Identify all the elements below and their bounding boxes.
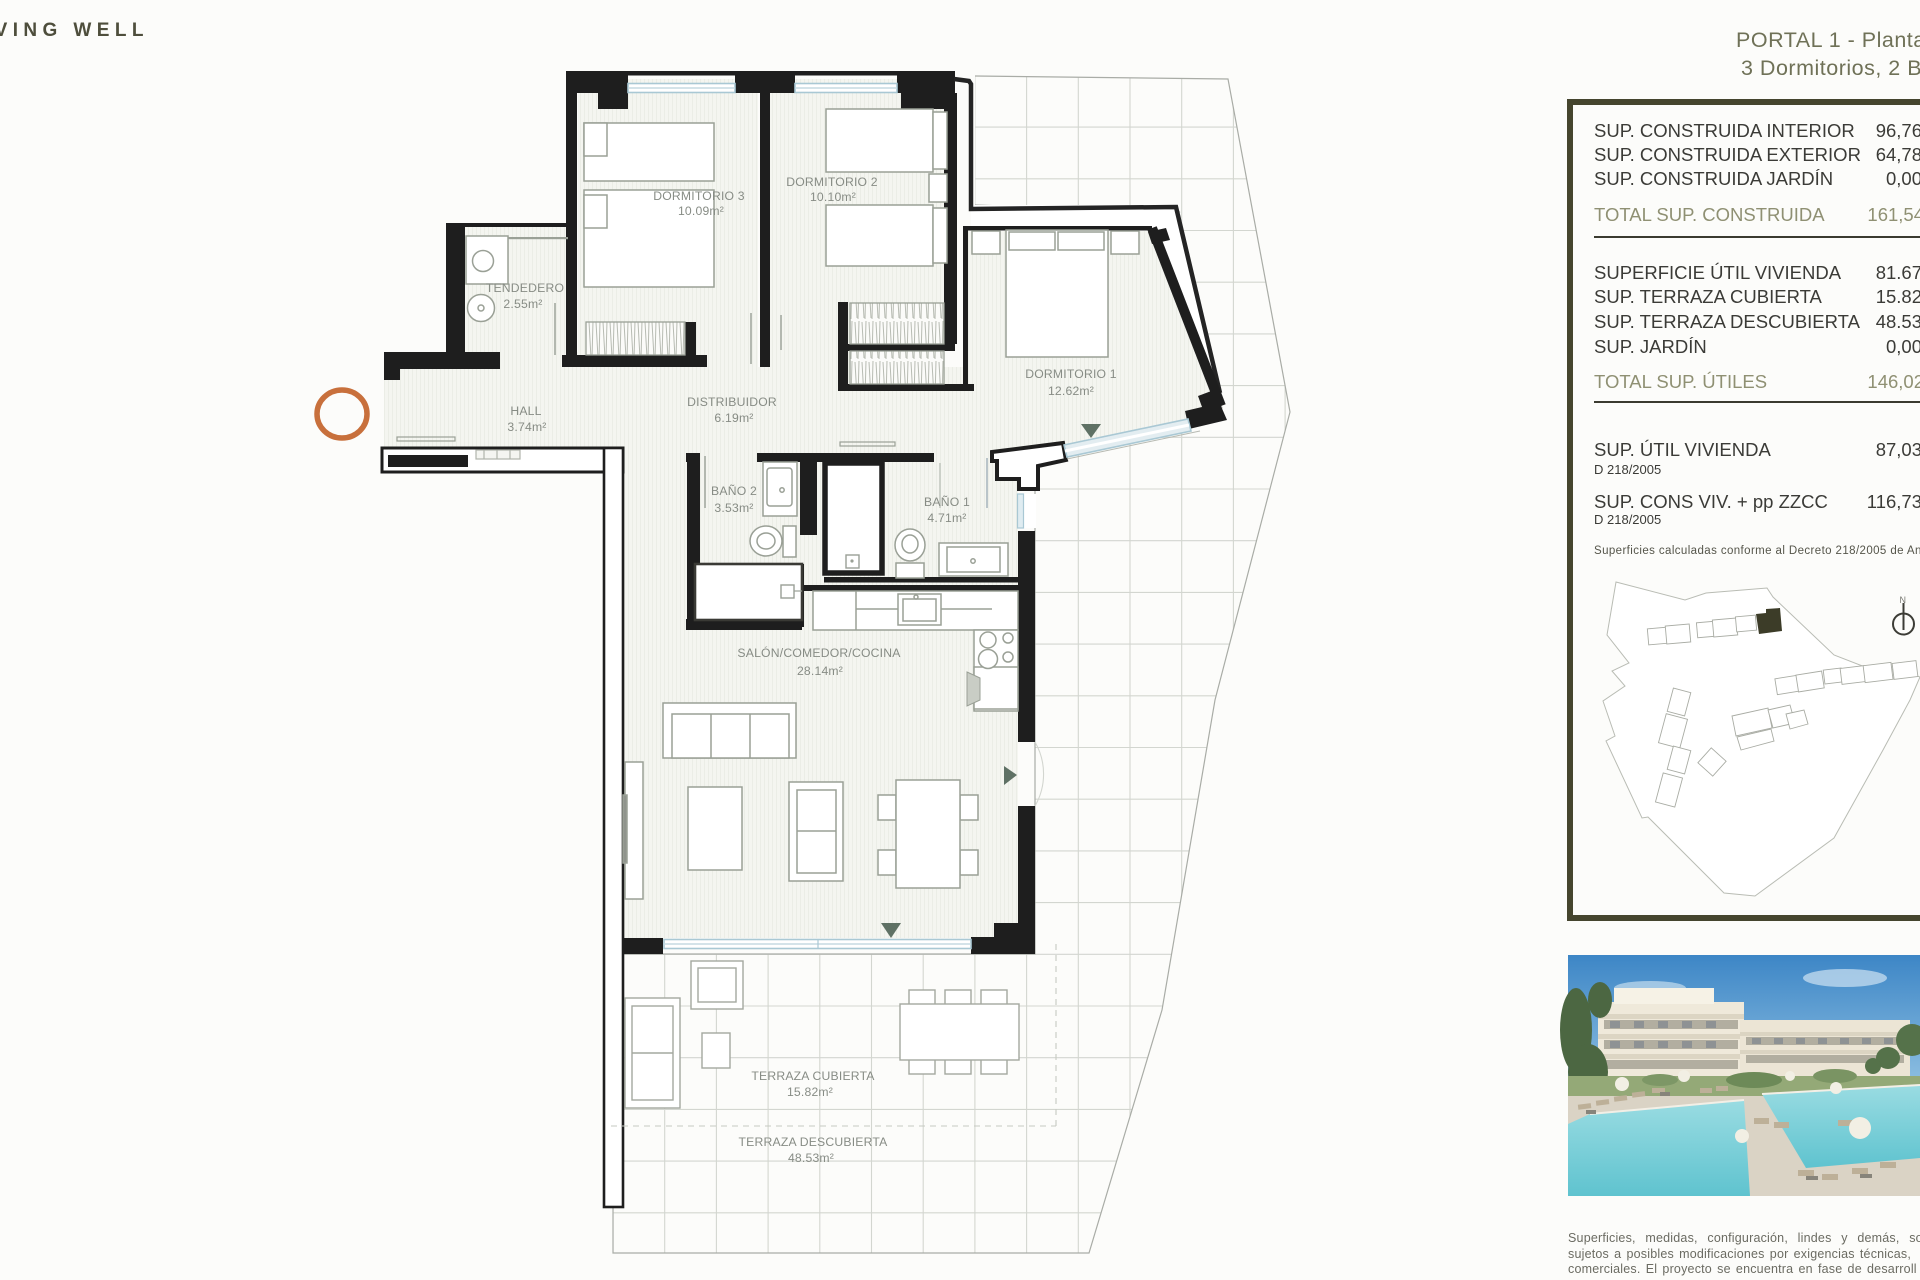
svg-text:TERRAZA DESCUBIERTA: TERRAZA DESCUBIERTA bbox=[739, 1135, 889, 1149]
svg-text:4.71m²: 4.71m² bbox=[927, 511, 966, 525]
svg-text:HALL: HALL bbox=[510, 404, 541, 418]
svg-text:DISTRIBUIDOR: DISTRIBUIDOR bbox=[687, 395, 777, 409]
svg-text:116,73: 116,73 bbox=[1867, 491, 1920, 512]
svg-text:PORTAL 1 - Planta B: PORTAL 1 - Planta B bbox=[1736, 28, 1920, 52]
svg-text:64,78: 64,78 bbox=[1876, 144, 1920, 165]
svg-text:SUP. CONSTRUIDA INTERIOR: SUP. CONSTRUIDA INTERIOR bbox=[1594, 120, 1855, 141]
svg-text:SUP. CONS VIV. + pp ZZCC: SUP. CONS VIV. + pp ZZCC bbox=[1594, 491, 1828, 512]
svg-text:15.82: 15.82 bbox=[1876, 286, 1920, 307]
svg-text:161,54: 161,54 bbox=[1867, 204, 1920, 225]
svg-text:28.14m²: 28.14m² bbox=[797, 664, 843, 678]
svg-text:TENDEDERO: TENDEDERO bbox=[486, 281, 564, 295]
svg-text:146,02: 146,02 bbox=[1867, 371, 1920, 392]
svg-text:Superficies, medidas, configur: Superficies, medidas, configuración, lin… bbox=[1568, 1231, 1920, 1245]
svg-text:0,00: 0,00 bbox=[1886, 168, 1920, 189]
svg-text:LIVING WELL: LIVING WELL bbox=[0, 20, 149, 41]
svg-text:48.53: 48.53 bbox=[1876, 311, 1920, 332]
svg-text:0,00: 0,00 bbox=[1886, 336, 1920, 357]
svg-text:sujetos a posibles modificacio: sujetos a posibles modificaciones por ex… bbox=[1568, 1247, 1911, 1261]
svg-text:SUP. TERRAZA CUBIERTA: SUP. TERRAZA CUBIERTA bbox=[1594, 286, 1823, 307]
svg-text:TOTAL SUP. ÚTILES: TOTAL SUP. ÚTILES bbox=[1594, 371, 1767, 392]
svg-text:SUP. CONSTRUIDA EXTERIOR: SUP. CONSTRUIDA EXTERIOR bbox=[1594, 144, 1861, 165]
svg-text:DORMITORIO 1: DORMITORIO 1 bbox=[1025, 367, 1117, 381]
svg-text:D 218/2005: D 218/2005 bbox=[1594, 462, 1661, 477]
svg-text:SUP. JARDÍN: SUP. JARDÍN bbox=[1594, 336, 1707, 357]
svg-text:10.10m²: 10.10m² bbox=[810, 190, 856, 204]
svg-text:D 218/2005: D 218/2005 bbox=[1594, 512, 1661, 527]
svg-text:TOTAL SUP. CONSTRUIDA: TOTAL SUP. CONSTRUIDA bbox=[1594, 204, 1825, 225]
svg-text:96,76: 96,76 bbox=[1876, 120, 1920, 141]
svg-text:SUP. CONSTRUIDA JARDÍN: SUP. CONSTRUIDA JARDÍN bbox=[1594, 168, 1833, 189]
svg-text:SUPERFICIE ÚTIL VIVIENDA: SUPERFICIE ÚTIL VIVIENDA bbox=[1594, 262, 1842, 283]
svg-text:SUP. TERRAZA DESCUBIERTA: SUP. TERRAZA DESCUBIERTA bbox=[1594, 311, 1861, 332]
svg-text:87,03: 87,03 bbox=[1876, 439, 1920, 460]
svg-text:TERRAZA CUBIERTA: TERRAZA CUBIERTA bbox=[751, 1069, 875, 1083]
svg-text:12.62m²: 12.62m² bbox=[1048, 384, 1094, 398]
svg-text:2.55m²: 2.55m² bbox=[503, 297, 542, 311]
svg-text:SALÓN/COMEDOR/COCINA: SALÓN/COMEDOR/COCINA bbox=[737, 645, 901, 660]
svg-text:3.74m²: 3.74m² bbox=[507, 420, 546, 434]
svg-text:BAÑO 2: BAÑO 2 bbox=[711, 484, 757, 498]
svg-text:comerciales. El proyecto se en: comerciales. El proyecto se encuentra en… bbox=[1568, 1262, 1917, 1276]
svg-text:3 Dormitorios, 2 Baños: 3 Dormitorios, 2 Baños bbox=[1741, 56, 1920, 80]
svg-text:48.53m²: 48.53m² bbox=[788, 1151, 834, 1165]
svg-text:DORMITORIO 2: DORMITORIO 2 bbox=[786, 175, 878, 189]
svg-text:SUP. ÚTIL VIVIENDA: SUP. ÚTIL VIVIENDA bbox=[1594, 439, 1771, 460]
svg-text:10.09m²: 10.09m² bbox=[678, 204, 724, 218]
svg-text:DORMITORIO 3: DORMITORIO 3 bbox=[653, 189, 745, 203]
svg-text:15.82m²: 15.82m² bbox=[787, 1085, 833, 1099]
svg-text:BAÑO 1: BAÑO 1 bbox=[924, 495, 970, 509]
svg-text:81.67: 81.67 bbox=[1876, 262, 1920, 283]
svg-text:N: N bbox=[1900, 595, 1907, 605]
svg-text:6.19m²: 6.19m² bbox=[714, 411, 753, 425]
svg-text:Superficies calculadas conform: Superficies calculadas conforme al Decre… bbox=[1594, 545, 1920, 557]
svg-text:3.53m²: 3.53m² bbox=[714, 501, 753, 515]
